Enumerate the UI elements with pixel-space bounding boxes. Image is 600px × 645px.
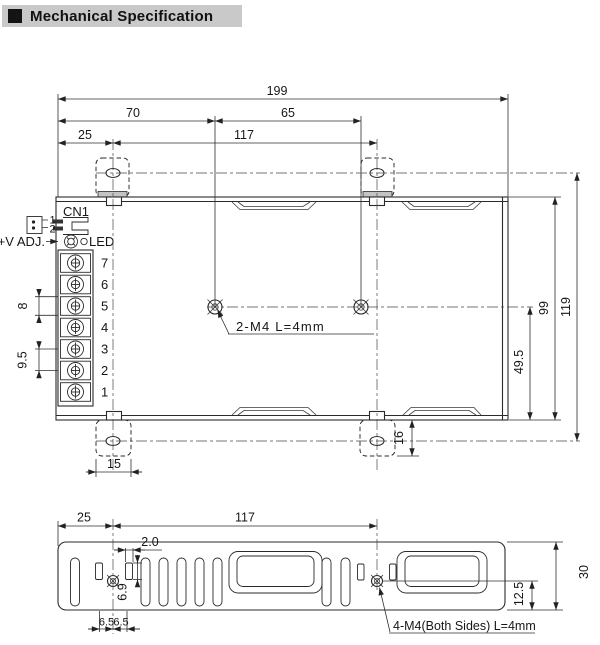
terminal-label: 1 — [101, 385, 108, 400]
dim-label: 25 — [77, 511, 91, 525]
dim-terminal-pitch-large: 9.5 — [16, 341, 40, 378]
terminal-label: 6 — [101, 277, 108, 292]
dim-case-depth: 30 — [556, 542, 591, 610]
terminal-label: 7 — [101, 256, 108, 271]
led-label: LED — [89, 234, 114, 249]
dim-hole-to-edge: 49.5 — [512, 307, 530, 420]
terminal-label: 4 — [101, 320, 108, 335]
terminal-label: 2 — [101, 363, 108, 378]
dim-label: 30 — [577, 565, 591, 579]
dim-label: 99 — [537, 301, 551, 315]
dim-label: 65 — [281, 106, 295, 120]
case-outline — [56, 197, 508, 420]
mechanical-specification-page: Mechanical Specification — [0, 0, 600, 645]
dim-label: 117 — [234, 128, 254, 142]
dim-label: 49.5 — [512, 350, 526, 374]
dim-terminal-pitch-small: 8 — [16, 289, 39, 323]
dim-flange-hole-spacing: 117 — [113, 128, 377, 143]
dim-label: 8 — [16, 302, 30, 309]
dim-label: 70 — [126, 106, 140, 120]
terminal-label: 3 — [101, 342, 108, 357]
edge-notch — [107, 197, 122, 206]
dim-label: 6.5 — [99, 617, 114, 629]
top-view-drawing: 7 6 5 4 — [0, 84, 580, 477]
note-label: 2-M4 L=4mm — [236, 319, 325, 334]
dim-hole-spacing: 65 — [215, 106, 361, 121]
dim-label: 6.5 — [113, 617, 128, 629]
note-label: 4-M4(Both Sides) L=4mm — [393, 619, 536, 633]
dim-hole1-from-left: 70 — [58, 106, 215, 121]
mating-connector: 1 2 — [27, 215, 56, 236]
dim-mounting-height: 119 — [559, 173, 577, 441]
dim-label: 119 — [559, 297, 573, 317]
dim-hole-from-bottom: 12.5 — [512, 581, 532, 610]
dim-label: 199 — [267, 84, 288, 98]
dim-flange-width: 15 — [86, 457, 142, 472]
dim-side-flange-offset: 25 — [58, 511, 113, 527]
dim-side-flange-spacing: 117 — [113, 511, 377, 527]
dim-label: 15 — [107, 457, 121, 471]
terminal-label: 5 — [101, 299, 108, 314]
dim-label: 12.5 — [512, 582, 526, 606]
vadj-label: +V ADJ. — [0, 234, 45, 249]
mechanical-drawing: 7 6 5 4 — [0, 0, 600, 645]
dim-label: 2.0 — [141, 535, 158, 549]
dim-label: 9.5 — [16, 351, 30, 368]
cn1-label: CN1 — [63, 204, 89, 219]
dim-label: 16 — [392, 431, 406, 445]
dim-total-width: 199 — [58, 84, 508, 99]
flange-foot — [98, 192, 127, 198]
dim-label: 25 — [78, 128, 92, 142]
dim-case-height: 99 — [537, 197, 555, 420]
pin2-label: 2 — [50, 224, 56, 236]
dim-label: 6.9 — [116, 583, 130, 600]
side-view-drawing: 25 117 2.0 6.9 — [58, 511, 591, 635]
dim-label: 117 — [235, 511, 255, 525]
dim-hole-offsets: 6.5 6.5 — [88, 617, 140, 630]
dim-flange-hole-from-left: 25 — [58, 128, 113, 143]
